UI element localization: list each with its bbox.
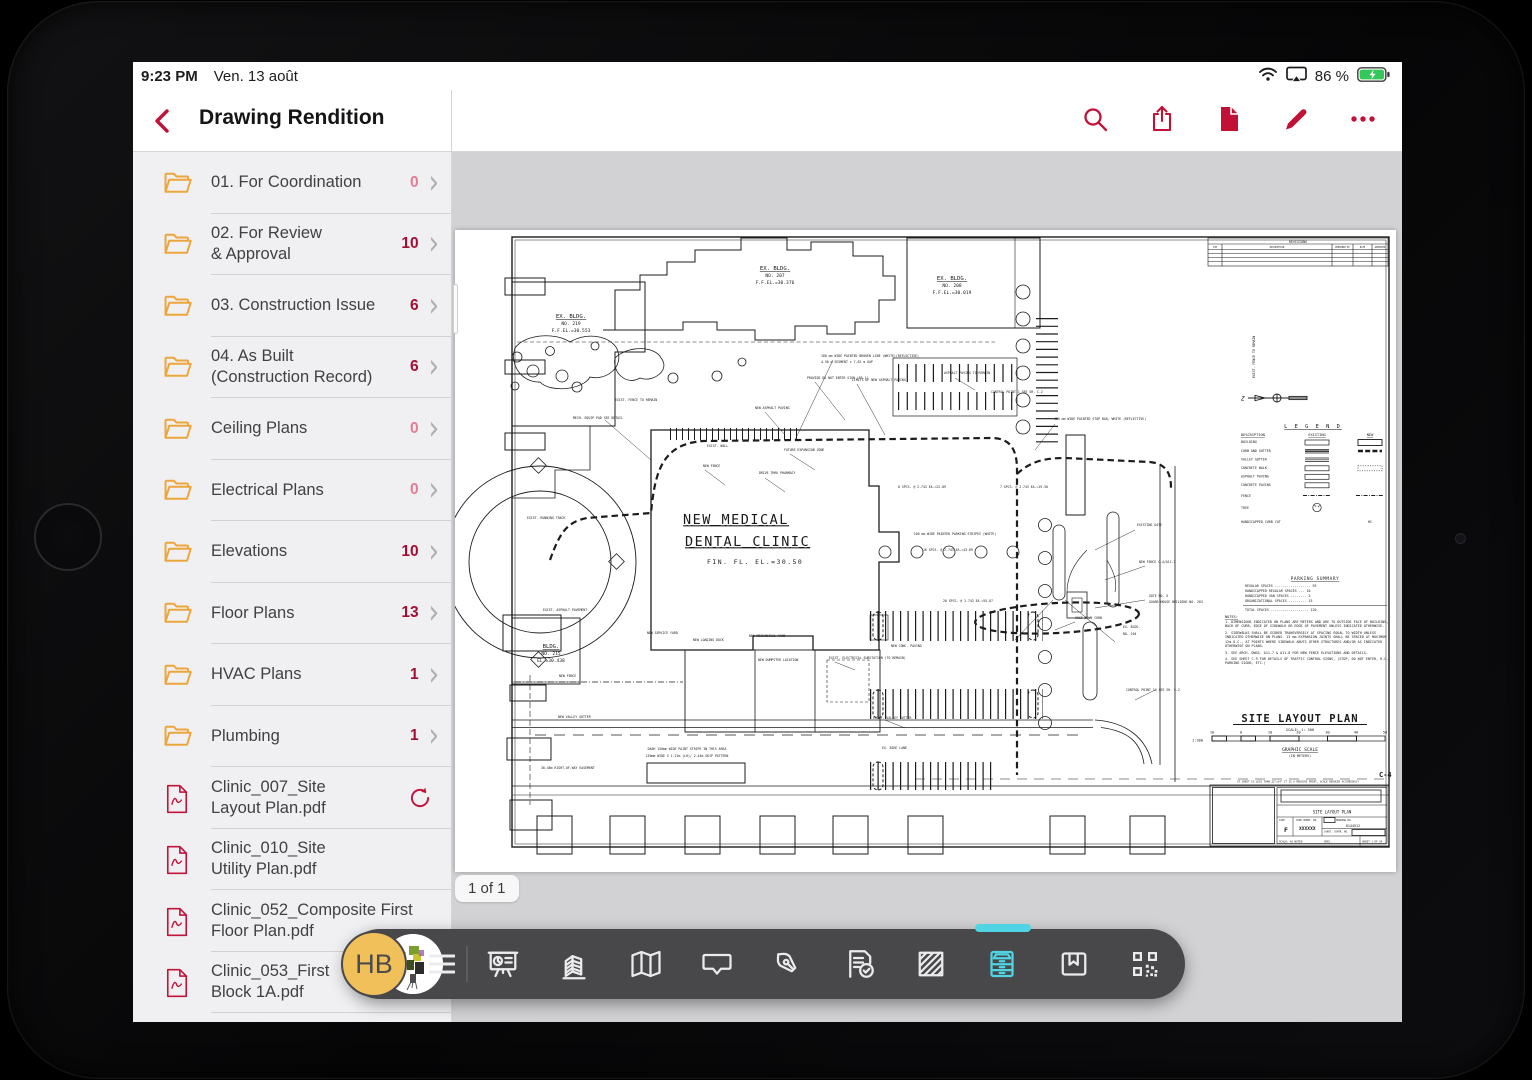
svg-text:EXIST. FENCE TO REMAIN: EXIST. FENCE TO REMAIN: [615, 398, 657, 402]
folder-label: 01. For Coordination: [211, 172, 379, 193]
trees: [511, 285, 1052, 730]
nav-bar: Drawing Rendition: [133, 90, 1402, 152]
svg-text:50: 50: [1383, 731, 1387, 735]
svg-text:16 SPCS. @ 2.743 EA.=43.89: 16 SPCS. @ 2.743 EA.=43.89: [923, 548, 973, 552]
svg-text:450 mm WIDE PAINTED STOP BAR,: 450 mm WIDE PAINTED STOP BAR, WHITE (REF…: [1054, 417, 1146, 421]
sync-icon: [407, 785, 433, 811]
folder-icon: [163, 415, 193, 443]
svg-text:SITE LAYOUT PLAN: SITE LAYOUT PLAN: [1313, 810, 1352, 815]
avatar-initials: HB: [355, 949, 393, 980]
svg-text:30.48m RIGHT-OF-WAY EASEMENT: 30.48m RIGHT-OF-WAY EASEMENT: [541, 766, 595, 770]
svg-text:ORGANIZATIONAL SPACES --------: ORGANIZATIONAL SPACES --------- 15: [1245, 599, 1313, 603]
svg-text:NEW FENCE: NEW FENCE: [559, 674, 576, 678]
sidebar-folder-row[interactable]: HVAC Plans1›: [133, 644, 451, 706]
svg-text:40: 40: [1354, 731, 1358, 735]
svg-text:HC: HC: [1368, 520, 1372, 524]
note-item: 2. SIDEWALKS SHALL BE SCORED TRANSVERSEL…: [1225, 631, 1393, 649]
sidebar-folder-row[interactable]: 04. As Built (Construction Record)6›: [133, 337, 451, 399]
folder-count: 10: [401, 543, 418, 561]
title-block: SITE LAYOUT PLAN SIZE F CODE IDENT. NO. …: [1210, 785, 1389, 846]
svg-text:CONTROL POINT 10 SEE SH. C-2: CONTROL POINT 10 SEE SH. C-2: [1126, 688, 1180, 692]
svg-text:NEW CONC. PAVING: NEW CONC. PAVING: [891, 644, 922, 648]
sidebar-folder-row[interactable]: Elevations10›: [133, 521, 451, 583]
svg-text:HANDICAPPED REGULAR SPACES ---: HANDICAPPED REGULAR SPACES --- 10: [1245, 589, 1311, 593]
folder-icon: [163, 722, 193, 750]
annotations: EXIST. FENCE TO REMAINEXIST. ASPHALT PAV…: [527, 336, 1256, 770]
svg-text:20 SPCS. @ 2.743 EA.=55.07: 20 SPCS. @ 2.743 EA.=55.07: [943, 599, 993, 603]
hatch-icon[interactable]: [913, 946, 949, 982]
note-item: 4. SEE SHEET C-9 FOR DETAILS OF TRAFFIC …: [1225, 657, 1393, 666]
chevron-right-icon: ›: [429, 724, 439, 749]
svg-text:SHEET 1 OF XX: SHEET 1 OF XX: [1362, 840, 1383, 844]
pdf-file-icon: [163, 968, 193, 996]
svg-text:CONCRETE PAVING: CONCRETE PAVING: [1241, 483, 1271, 487]
svg-text:FIN. FL. EL.=30.50: FIN. FL. EL.=30.50: [707, 558, 803, 566]
svg-text:APPROVED: APPROVED: [1375, 246, 1386, 249]
drawing-viewer[interactable]: REVISIONS SYMDESCRIPTIONPREPARED BYDATEA…: [452, 152, 1402, 1022]
folder-count: 10: [401, 235, 418, 253]
svg-text:EX. BLDG.: EX. BLDG.: [937, 276, 967, 282]
chevron-right-icon: ›: [429, 478, 439, 503]
document-icon[interactable]: [1212, 102, 1246, 136]
note-item: 1. DIMENSIONS INDICATED ON PLANS ARE MET…: [1225, 620, 1393, 629]
svg-text:SITE LAYOUT PLAN: SITE LAYOUT PLAN: [1241, 713, 1358, 725]
slideshow-icon[interactable]: [485, 946, 521, 982]
folder-label: Electrical Plans: [211, 480, 379, 501]
svg-text:XXXXXX: XXXXXX: [1299, 826, 1316, 832]
svg-text:DRIVE THRU PHARMACY: DRIVE THRU PHARMACY: [759, 471, 796, 475]
user-avatar[interactable]: HB: [341, 931, 407, 997]
edit-pencil-icon[interactable]: [1279, 102, 1313, 136]
svg-text:FUTURE EXPANSION ZONE: FUTURE EXPANSION ZONE: [784, 448, 824, 452]
parking-summary: PARKING SUMMARY REGULAR SPACES ---------…: [1243, 576, 1387, 612]
pdf-file-icon: [163, 907, 193, 935]
svg-text:NEW MEDICAL: NEW MEDICAL: [683, 512, 789, 528]
drawers-icon[interactable]: [984, 946, 1020, 982]
home-button[interactable]: [34, 503, 102, 571]
svg-text:(IN METERS): (IN METERS): [1289, 754, 1311, 758]
svg-text:DRAWING NO.: DRAWING NO.: [1336, 819, 1352, 822]
chevron-right-icon: ›: [429, 170, 439, 195]
qr-code-icon[interactable]: [1127, 946, 1163, 982]
svg-text:NEW FENCE: NEW FENCE: [703, 464, 720, 468]
chevron-right-icon: ›: [429, 662, 439, 687]
chevron-right-icon: ›: [429, 293, 439, 318]
svg-text:NO. 219: NO. 219: [561, 321, 581, 327]
new-clinic-building: NEW MEDICAL DENTAL CLINIC FIN. FL. EL.=3…: [651, 430, 899, 650]
svg-text:EL.=30.438: EL.=30.438: [537, 658, 565, 664]
svg-text:30: 30: [1325, 731, 1329, 735]
folder-count: 0: [410, 420, 419, 438]
redaction-boxes: [503, 278, 1165, 854]
file-label: Clinic_010_Site Utility Plan.pdf: [211, 838, 421, 880]
folder-label: Plumbing: [211, 726, 379, 747]
folder-count: 13: [401, 604, 418, 622]
svg-text:FENCE: FENCE: [1241, 494, 1251, 498]
note-item: 3. SEE ARCH. DWGS. A11-7 & A11-8 FOR NEW…: [1225, 651, 1393, 655]
chevron-right-icon: ›: [429, 232, 439, 257]
folder-count: 6: [410, 297, 419, 315]
revisions-table: REVISIONS SYMDESCRIPTIONPREPARED BYDATEA…: [1208, 238, 1388, 266]
screen-mirroring-icon: [1286, 66, 1307, 86]
notes-block: NOTES: 1. DIMENSIONS INDICATED ON PLANS …: [1225, 615, 1393, 712]
folder-label: 02. For Review & Approval: [211, 223, 379, 265]
svg-text:F.F.EL.=30.019: F.F.EL.=30.019: [933, 290, 972, 296]
svg-text:10: 10: [1210, 731, 1214, 735]
back-chevron-icon[interactable]: [147, 104, 181, 138]
svg-text:4.50 m SEGMENT x 7.62 m GAP: 4.50 m SEGMENT x 7.62 m GAP: [821, 360, 873, 364]
folder-label: 04. As Built (Construction Record): [211, 346, 379, 388]
status-bar: 9:23 PM Ven. 13 août 86 %: [133, 62, 1402, 90]
chevron-right-icon: ›: [429, 416, 439, 441]
folder-icon: [163, 661, 193, 689]
svg-text:EXISTING GATE: EXISTING GATE: [1137, 523, 1162, 527]
svg-text:EX. BLDG.: EX. BLDG.: [1123, 625, 1140, 629]
folder-icon: [163, 538, 193, 566]
svg-text:8 SPCS. @ 2.743 EA.=22.09: 8 SPCS. @ 2.743 EA.=22.09: [898, 485, 946, 489]
file-label: Clinic_007_Site Layout Plan.pdf: [211, 777, 407, 819]
svg-text:NO. 208: NO. 208: [942, 283, 962, 289]
svg-text:NO. 204: NO. 204: [1123, 632, 1137, 636]
site-layout-drawing: REVISIONS SYMDESCRIPTIONPREPARED BYDATEA…: [455, 230, 1396, 872]
svg-text:LIMITS OF NEW ASPHALT PAVING: LIMITS OF NEW ASPHALT PAVING: [852, 378, 906, 382]
chevron-right-icon: ›: [429, 601, 439, 626]
svg-text:EXIST. ASPHALT PAVEMENT: EXIST. ASPHALT PAVEMENT: [543, 608, 587, 612]
svg-text:10: 10: [1268, 731, 1272, 735]
svg-text:DESCRIPTION: DESCRIPTION: [1270, 246, 1285, 249]
svg-text:IF SHEET IS LESS THAN 22"x34": IF SHEET IS LESS THAN 22"x34" IT IS A RE…: [1237, 780, 1359, 784]
building-labels: EX. BLDG. NO. 219 F.F.EL.=30.553 EX. BLD…: [537, 266, 971, 664]
folder-label: Elevations: [211, 541, 379, 562]
svg-text:NO. 207: NO. 207: [765, 273, 785, 279]
share-icon[interactable]: [1145, 102, 1179, 136]
svg-text:F: F: [1284, 826, 1288, 834]
chevron-right-icon: ›: [429, 355, 439, 380]
svg-text:L E G E N D: L E G E N D: [1284, 424, 1342, 430]
svg-text:NEW SERVICE YARD: NEW SERVICE YARD: [647, 631, 678, 635]
svg-text:NEW MECHANICAL YARD: NEW MECHANICAL YARD: [749, 634, 786, 638]
folder-icon: [163, 476, 193, 504]
folder-label: Ceiling Plans: [211, 418, 379, 439]
folder-icon: [163, 353, 193, 381]
svg-text:SPEC.: SPEC.: [1324, 840, 1332, 844]
comment-icon[interactable]: [699, 946, 735, 982]
svg-text:DESCRIPTION: DESCRIPTION: [1241, 433, 1265, 437]
svg-text:ASPHALT PAVING TO REMAIN: ASPHALT PAVING TO REMAIN: [944, 371, 990, 375]
sidebar-folder-row[interactable]: Ceiling Plans0›: [133, 398, 451, 460]
folder-count: 1: [410, 727, 419, 745]
svg-text:HANDICAPPED CURB CUT: HANDICAPPED CURB CUT: [1241, 520, 1281, 524]
folder-icon: [163, 599, 193, 627]
svg-text:NEW ASPHALT PAVING: NEW ASPHALT PAVING: [755, 406, 790, 410]
svg-text:EX. BIKE LANE: EX. BIKE LANE: [882, 746, 907, 750]
drive-route: [550, 438, 1171, 775]
svg-text:NEW VALLEY GUTTER: NEW VALLEY GUTTER: [558, 715, 591, 719]
more-ellipsis-icon[interactable]: [1346, 102, 1380, 136]
wifi-icon: [1258, 66, 1278, 86]
svg-text:HANDICAPPED VAN SPACES -------: HANDICAPPED VAN SPACES -------- 2: [1245, 594, 1311, 598]
pen-icon[interactable]: [770, 946, 806, 982]
svg-text:NEW DUMPSTER LOCATION: NEW DUMPSTER LOCATION: [758, 658, 798, 662]
pdf-file-icon: [163, 845, 193, 873]
status-date: Ven. 13 août: [214, 68, 298, 85]
svg-text:ASPHALT PAVING: ASPHALT PAVING: [1241, 475, 1269, 479]
search-icon[interactable]: [1078, 102, 1112, 136]
svg-text:BLDG.: BLDG.: [543, 644, 560, 650]
legend: L E G E N D DESCRIPTION EXISTING NEW: [1241, 424, 1384, 524]
folder-count: 6: [410, 358, 419, 376]
svg-text:DATE: DATE: [1360, 246, 1366, 249]
svg-text:1:300: 1:300: [1192, 739, 1203, 743]
svg-text:SYM: SYM: [1213, 246, 1218, 249]
svg-text:PARKING SUMMARY: PARKING SUMMARY: [1291, 576, 1340, 582]
svg-text:GUARD HOUSE BUILDING NO. 203: GUARD HOUSE BUILDING NO. 203: [1149, 600, 1203, 604]
sidebar-folder-row[interactable]: 01. For Coordination0›: [133, 152, 451, 214]
svg-text:GRAPHIC SCALE: GRAPHIC SCALE: [1282, 747, 1318, 753]
svg-text:20: 20: [1296, 731, 1300, 735]
status-time: 9:23 PM: [141, 68, 198, 85]
svg-text:EXIST. FENCE TO REMAIN: EXIST. FENCE TO REMAIN: [1252, 336, 1256, 378]
svg-text:CONTROL POINT 1 SEE SH. C-2: CONTROL POINT 1 SEE SH. C-2: [991, 390, 1043, 394]
battery-charging-icon: [1357, 67, 1390, 86]
sidebar-file-row[interactable]: Clinic_007_Site Layout Plan.pdf: [133, 767, 451, 829]
svg-text:EXISTING: EXISTING: [1308, 433, 1325, 437]
svg-text:EXIST. WALL: EXIST. WALL: [707, 444, 728, 448]
svg-text:PREPARED BY: PREPARED BY: [1335, 246, 1350, 249]
svg-text:VALLEY GUTTER: VALLEY GUTTER: [1241, 457, 1267, 461]
sidebar-folder-row[interactable]: 02. For Review & Approval10›: [133, 214, 451, 276]
svg-text:SIZE: SIZE: [1279, 819, 1285, 822]
svg-text:100 mm WIDE PAINTED PARKING ST: 100 mm WIDE PAINTED PARKING STRIPES (WHI…: [914, 532, 997, 536]
scrollbar-thumb[interactable]: [453, 284, 458, 334]
svg-text:NOTES:: NOTES:: [1225, 615, 1238, 619]
front-camera: [1455, 533, 1466, 544]
menu-hamburger-icon[interactable]: [429, 954, 455, 974]
sidebar: 01. For Coordination0›02. For Review & A…: [133, 152, 451, 1022]
folder-icon: [163, 292, 193, 320]
sidebar-folder-row[interactable]: Electrical Plans0›: [133, 460, 451, 522]
svg-text:8144512: 8144512: [1346, 824, 1360, 828]
sidebar-folder-row[interactable]: Plumbing1›: [133, 706, 451, 768]
app-screen: 9:23 PM Ven. 13 août 86 %: [133, 62, 1402, 1022]
ipad-bezel: 9:23 PM Ven. 13 août 86 %: [7, 1, 1525, 1079]
svg-text:DENTAL CLINIC: DENTAL CLINIC: [685, 534, 810, 550]
svg-text:EX. BLDG.: EX. BLDG.: [760, 266, 790, 272]
svg-text:NEW FENCE C-4/A11-7: NEW FENCE C-4/A11-7: [1139, 560, 1176, 564]
svg-text:SCALE: AS NOTED: SCALE: AS NOTED: [1279, 840, 1303, 844]
svg-text:NEW: NEW: [1367, 433, 1374, 437]
sidebar-folder-row[interactable]: 03. Construction Issue6›: [133, 275, 451, 337]
svg-text:GATE NO. 5: GATE NO. 5: [1149, 594, 1168, 598]
plan-title-block: SITE LAYOUT PLAN SCALE: 1: 300 100102030…: [1192, 713, 1391, 784]
svg-text:NEW LOADING DOCK: NEW LOADING DOCK: [693, 638, 724, 642]
site-linework: [455, 336, 1389, 805]
svg-text:7 SPCS. @ 2.743 EA.=19.50: 7 SPCS. @ 2.743 EA.=19.50: [1000, 485, 1048, 489]
svg-text:F.F.EL.=30.553: F.F.EL.=30.553: [552, 328, 591, 334]
bottom-toolbar: HB: [345, 929, 1185, 999]
svg-text:CONCRETE WALK: CONCRETE WALK: [1241, 466, 1267, 470]
screenshot-stage: 9:23 PM Ven. 13 août 86 %: [0, 0, 1532, 1080]
revisions-title: REVISIONS: [1289, 240, 1307, 244]
folder-icon: [163, 169, 193, 197]
chevron-right-icon: ›: [429, 539, 439, 564]
svg-text:CONST. CONTR. NO.: CONST. CONTR. NO.: [1324, 831, 1348, 834]
svg-text:EX. BLDG.: EX. BLDG.: [556, 314, 586, 320]
svg-text:REGULAR SPACES ---------------: REGULAR SPACES ------------------ 93: [1245, 584, 1316, 588]
sidebar-file-row[interactable]: Clinic_010_Site Utility Plan.pdf: [133, 829, 451, 891]
page-indicator: 1 of 1: [455, 875, 519, 902]
map-icon[interactable]: [628, 946, 664, 982]
svg-text:CURB AND GUTTER: CURB AND GUTTER: [1241, 449, 1271, 453]
folder-label: 03. Construction Issue: [211, 295, 379, 316]
svg-text:EXIST. ELECTRICAL SUBSTATION (: EXIST. ELECTRICAL SUBSTATION (TO REMAIN): [829, 656, 906, 660]
sidebar-divider: [451, 90, 452, 1022]
north-arrow-icon: Z: [1240, 394, 1307, 403]
toolbar-separator: [466, 946, 468, 982]
folder-label: Floor Plans: [211, 603, 379, 624]
svg-text:BUILDING: BUILDING: [1241, 440, 1257, 444]
svg-text:TOTAL SPACES -----------------: TOTAL SPACES ------------------- 120: [1245, 608, 1316, 612]
svg-text:CODE IDENT. NO.: CODE IDENT. NO.: [1296, 819, 1318, 822]
drawing-page[interactable]: REVISIONS SYMDESCRIPTIONPREPARED BYDATEA…: [455, 230, 1396, 872]
svg-text:EXIST. RUNNING TRACK: EXIST. RUNNING TRACK: [527, 516, 565, 520]
folder-count: 1: [410, 666, 419, 684]
bookmark-icon[interactable]: [1056, 946, 1092, 982]
svg-text:HOSE-DOWN CURB: HOSE-DOWN CURB: [1075, 616, 1102, 620]
svg-text:MECH. EQUIP PAD SEE DETAIL: MECH. EQUIP PAD SEE DETAIL: [573, 416, 623, 420]
svg-text:150mm WIDE X 1.22m (LH)/ 2.44m: 150mm WIDE X 1.22m (LH)/ 2.44m SKIP PATT…: [646, 754, 729, 758]
page-title: Drawing Rendition: [199, 106, 385, 130]
folder-icon: [163, 230, 193, 258]
svg-text:F.F.EL.=30.376: F.F.EL.=30.376: [756, 280, 795, 286]
sheet-number: C-4: [1379, 771, 1392, 779]
svg-text:Z: Z: [1240, 396, 1245, 403]
pdf-file-icon: [163, 784, 193, 812]
form-check-icon[interactable]: [842, 946, 878, 982]
folder-count: 0: [410, 481, 419, 499]
battery-percent: 86 %: [1315, 68, 1349, 85]
svg-text:EXIST. VALLEY GUTTER: EXIST. VALLEY GUTTER: [873, 716, 911, 720]
svg-text:DASH 150mm WIDE PAINT STRIPE I: DASH 150mm WIDE PAINT STRIPE IN THIS ARE…: [648, 747, 727, 751]
svg-text:TREE: TREE: [1241, 506, 1249, 510]
building-icon[interactable]: [556, 946, 592, 982]
sidebar-folder-row[interactable]: Floor Plans13›: [133, 583, 451, 645]
folder-count: 0: [410, 174, 419, 192]
folder-label: HVAC Plans: [211, 664, 379, 685]
svg-text:100 mm WIDE PAINTED BROKEN LIN: 100 mm WIDE PAINTED BROKEN LINE (WHITE)(…: [821, 354, 919, 358]
svg-text:0: 0: [1240, 731, 1242, 735]
